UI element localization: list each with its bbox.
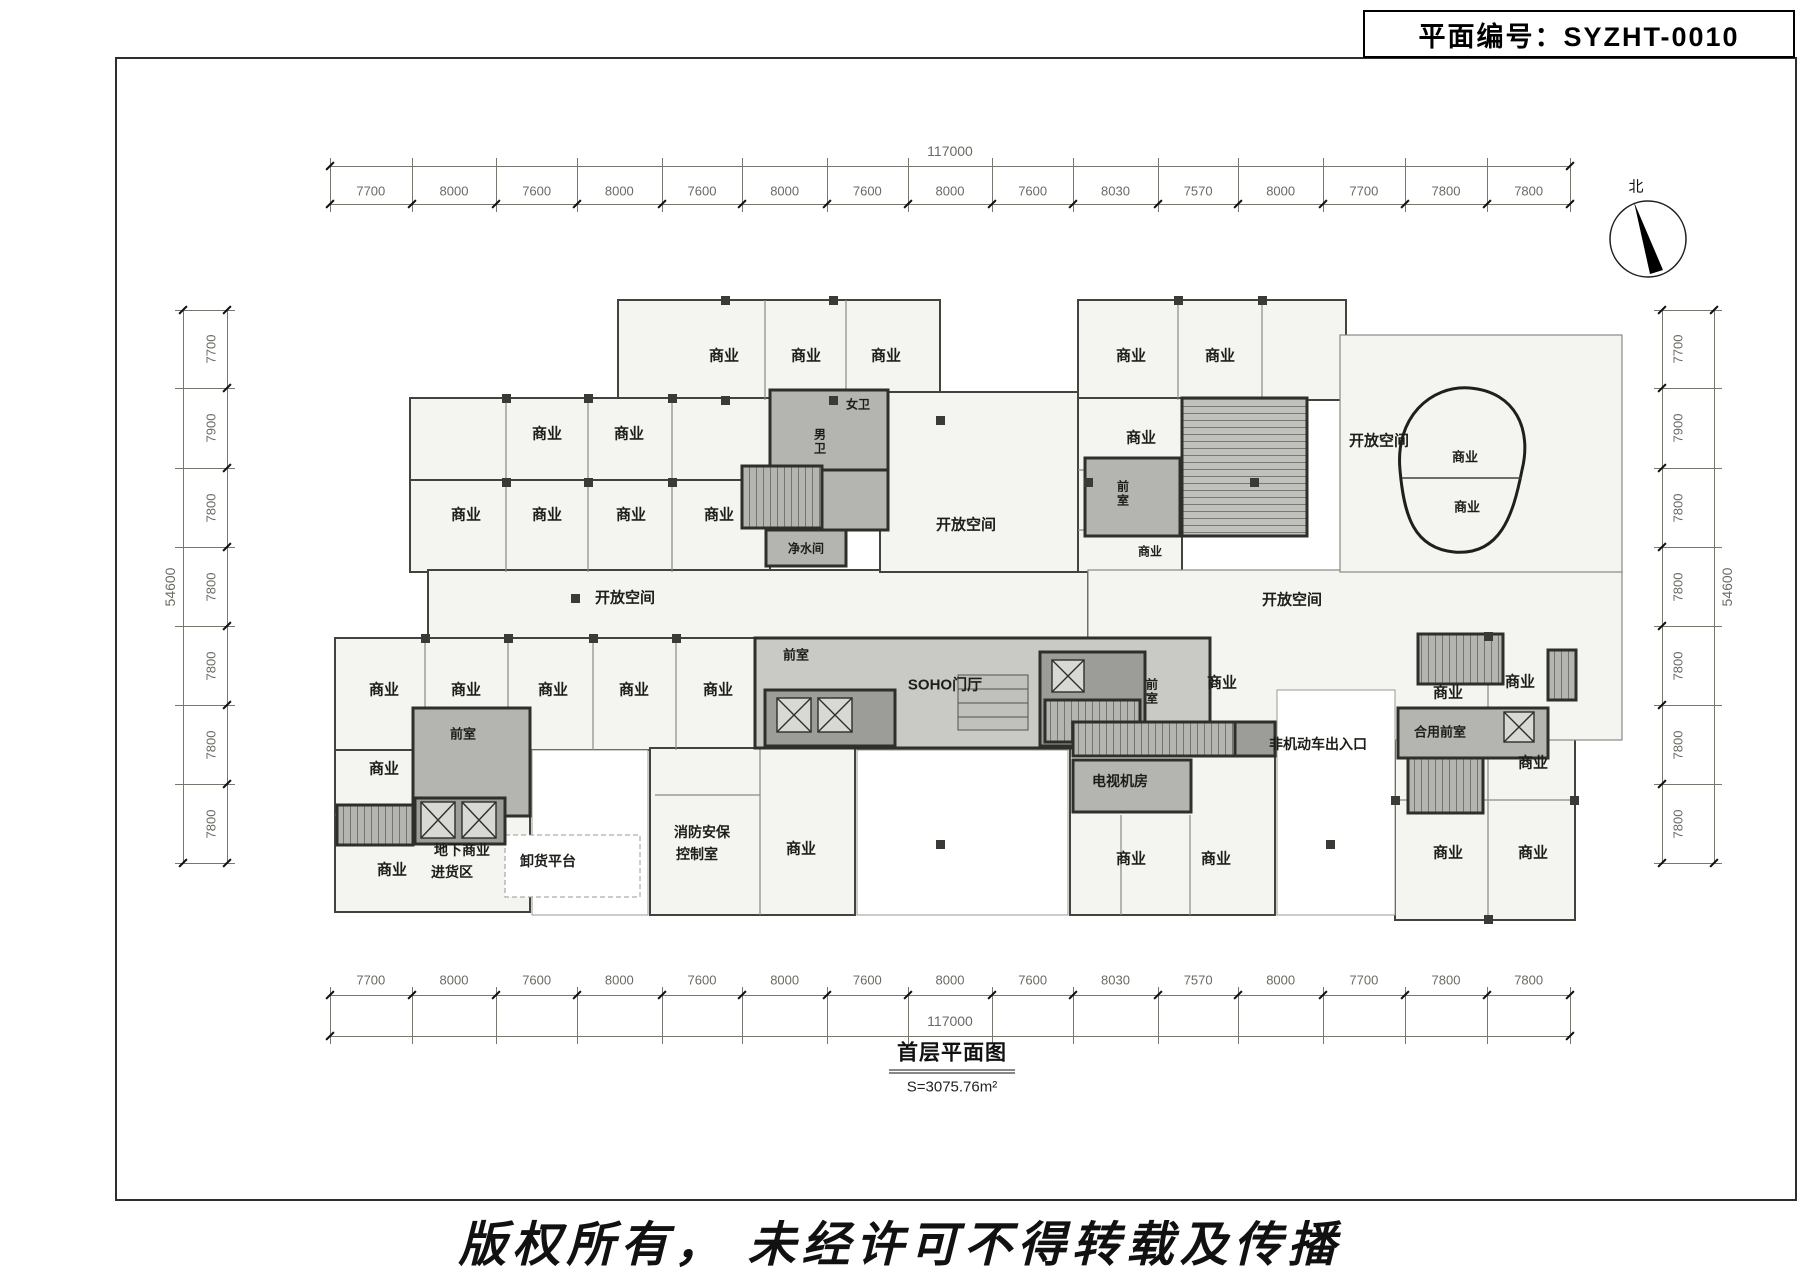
room-label: 商业: [786, 838, 816, 859]
room-label: 商业: [614, 423, 644, 444]
dimension-value: 7700: [1349, 184, 1378, 199]
dimension-line: [1654, 468, 1722, 469]
plan-number-box: 平面编号：SYZHT-0010: [1363, 10, 1795, 58]
dimension-value: 7800: [204, 572, 219, 601]
plan-title: 首层平面图: [889, 1037, 1015, 1074]
dimension-value: 7600: [522, 184, 551, 199]
dimension-value: 8000: [936, 973, 965, 988]
room-label: 进货区: [431, 862, 473, 882]
dimension-value: 7800: [1671, 809, 1686, 838]
dimension-value: 8000: [770, 184, 799, 199]
title-block: 首层平面图 S=3075.76m²: [889, 1037, 1015, 1096]
dimension-line: [1714, 310, 1715, 863]
room-label: 商业: [1433, 842, 1463, 863]
room-label: 商业: [1116, 345, 1146, 366]
room-label: 商业: [1433, 682, 1463, 703]
dimension-total: 54600: [162, 567, 178, 606]
room-label: 非机动车出入口: [1269, 734, 1367, 754]
dimension-value: 7570: [1184, 973, 1213, 988]
room-label: 净水间: [788, 540, 824, 557]
dimension-value: 7570: [1184, 184, 1213, 199]
room-label: 开放空间: [595, 587, 655, 608]
room-label: 商业: [538, 679, 568, 700]
dimension-value: 7800: [1432, 184, 1461, 199]
room-label: 前室: [1115, 480, 1132, 508]
dimension-value: 7600: [1018, 973, 1047, 988]
room-label: 商业: [1116, 848, 1146, 869]
room-label: 商业: [377, 859, 407, 880]
room-label: 商业: [871, 345, 901, 366]
room-label: 商业: [703, 679, 733, 700]
room-label: 商业: [1454, 497, 1480, 516]
dimension-value: 7800: [1514, 973, 1543, 988]
dimension-line: [330, 995, 1570, 996]
dimension-line: [1654, 784, 1722, 785]
room-label: 商业: [1518, 842, 1548, 863]
dimension-value: 7700: [204, 335, 219, 364]
dimension-value: 7800: [1671, 572, 1686, 601]
room-label: 商业: [1205, 345, 1235, 366]
dimension-value: 7800: [1671, 730, 1686, 759]
dimension-value: 8000: [770, 973, 799, 988]
room-label: 商业: [451, 504, 481, 525]
dimension-value: 7700: [1671, 335, 1686, 364]
room-label: 商业: [451, 679, 481, 700]
dimension-value: 8000: [605, 184, 634, 199]
dimension-value: 8000: [605, 973, 634, 988]
dimension-value: 7600: [688, 184, 717, 199]
dimension-value: 8000: [1266, 184, 1295, 199]
dimension-line: [1654, 547, 1722, 548]
room-label: 商业: [616, 504, 646, 525]
dimension-value: 7900: [204, 414, 219, 443]
room-label: 商业: [1452, 447, 1478, 466]
room-label: 前室: [1144, 678, 1161, 706]
north-needle: [1634, 202, 1663, 274]
dimension-value: 7800: [204, 651, 219, 680]
room-label: 控制室: [676, 844, 718, 864]
room-label: 商业: [1207, 672, 1237, 693]
room-label: 前室: [783, 645, 809, 664]
dimension-value: 7600: [688, 973, 717, 988]
room-label: 商业: [1138, 543, 1162, 560]
room-label: 地下商业: [434, 840, 490, 860]
room-label: 商业: [704, 504, 734, 525]
dimension-value: 7900: [1671, 414, 1686, 443]
dimension-value: 8000: [440, 973, 469, 988]
room-label: 前室: [450, 724, 476, 743]
dimension-total: 117000: [927, 143, 973, 159]
room-label: 男卫: [812, 428, 829, 456]
dimension-value: 8000: [1266, 973, 1295, 988]
dimension-line: [1654, 626, 1722, 627]
dimension-value: 7600: [1018, 184, 1047, 199]
north-compass: [1610, 201, 1686, 277]
dimension-line: [183, 310, 184, 863]
dimension-value: 7800: [204, 493, 219, 522]
dimension-total: 54600: [1719, 567, 1735, 606]
room-label: 商业: [1518, 752, 1548, 773]
copyright-banner: 版权所有， 未经许可不得转载及传播: [0, 1205, 1800, 1273]
room-label: 商业: [369, 758, 399, 779]
dimension-value: 7700: [356, 184, 385, 199]
plan-number-text: 平面编号：SYZHT-0010: [1418, 15, 1739, 54]
dimension-value: 7800: [1514, 184, 1543, 199]
dimension-value: 7800: [1671, 651, 1686, 680]
room-label: 卸货平台: [520, 851, 576, 871]
room-label: 商业: [1201, 848, 1231, 869]
dimension-value: 8000: [936, 184, 965, 199]
room-label: 电视机房: [1092, 771, 1148, 791]
dimension-value: 7800: [1671, 493, 1686, 522]
room-label: SOHO门厅: [908, 674, 982, 695]
room-label: 商业: [532, 423, 562, 444]
drawing-sheet: 平面编号：SYZHT-0010: [0, 0, 1800, 1273]
dimension-value: 7700: [1349, 973, 1378, 988]
dimension-total: 117000: [927, 1013, 973, 1029]
dimension-line: [330, 204, 1570, 205]
north-label: 北: [1628, 176, 1643, 197]
room-label: 商业: [369, 679, 399, 700]
dimension-line: [1654, 388, 1722, 389]
dimension-value: 7800: [1432, 973, 1461, 988]
dimension-value: 7800: [204, 809, 219, 838]
room-label: 合用前室: [1414, 722, 1466, 741]
room-label: 消防安保: [674, 822, 730, 842]
dimension-value: 7600: [522, 973, 551, 988]
room-label: 商业: [619, 679, 649, 700]
room-label: 开放空间: [936, 514, 996, 535]
room-label: 商业: [791, 345, 821, 366]
room-label: 商业: [1126, 427, 1156, 448]
room-label: 开放空间: [1262, 589, 1322, 610]
room-label: 商业: [532, 504, 562, 525]
room-label: 商业: [1505, 671, 1535, 692]
dimension-value: 8030: [1101, 973, 1130, 988]
dimension-value: 7700: [356, 973, 385, 988]
room-label: 商业: [709, 345, 739, 366]
dimension-value: 8000: [440, 184, 469, 199]
room-label: 女卫: [846, 396, 870, 413]
dimension-line: [1654, 705, 1722, 706]
dimension-value: 7800: [204, 730, 219, 759]
room-label: 开放空间: [1349, 430, 1409, 451]
dimension-value: 8030: [1101, 184, 1130, 199]
dimension-value: 7600: [853, 184, 882, 199]
dimension-value: 7600: [853, 973, 882, 988]
dimension-line: [330, 166, 1570, 167]
plan-area-value: S=3075.76m²: [889, 1079, 1015, 1096]
